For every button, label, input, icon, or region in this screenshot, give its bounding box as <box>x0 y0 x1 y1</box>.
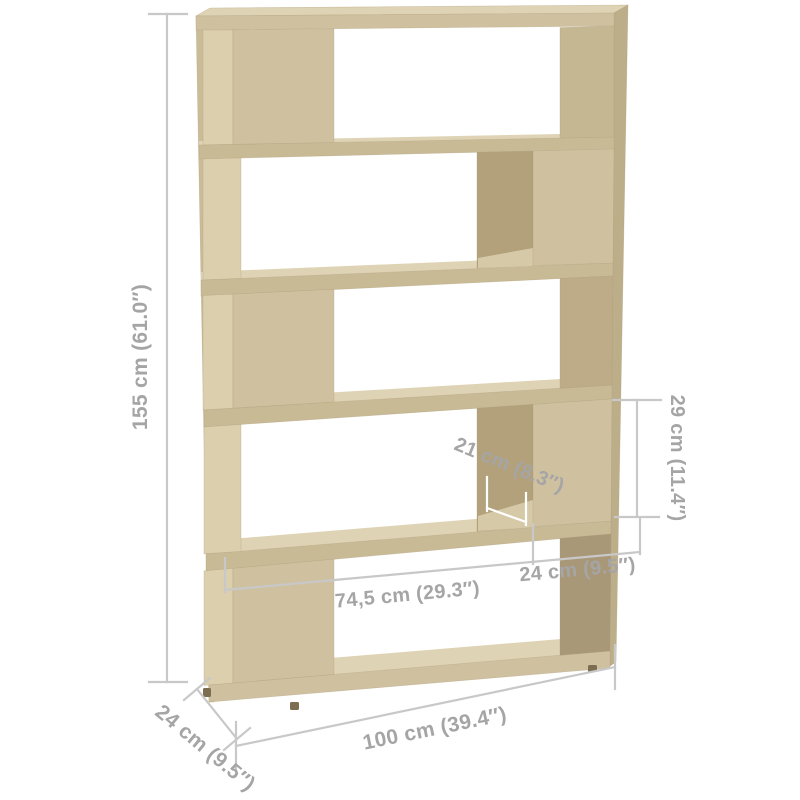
product-dimension-diagram: 155 cm (61.0″) 100 cm (39.4″) 24 cm (9.5… <box>0 0 800 800</box>
dimension-height: 155 cm (61.0″) <box>129 14 187 682</box>
tier5-right-inner-panel <box>560 534 611 655</box>
tier1-right-inner-panel <box>560 26 614 138</box>
tier2-left-inner-panel <box>203 158 241 280</box>
foot-left <box>203 688 211 697</box>
tier4-left-inner-panel <box>204 424 241 553</box>
tier5-box-front <box>233 559 334 683</box>
tier1-box-left-side <box>203 30 233 145</box>
tier5-box-left-side <box>204 568 233 685</box>
tier3-right-inner-panel <box>560 276 613 388</box>
inner-width-dimension-label: 74,5 cm (29.3″) <box>334 577 481 612</box>
bookshelf-diagram-canvas: 155 cm (61.0″) 100 cm (39.4″) 24 cm (9.5… <box>0 0 800 800</box>
width-dimension-label: 100 cm (39.4″) <box>361 703 509 755</box>
tier3-box-front <box>233 289 334 408</box>
tier1-box-front <box>233 29 334 144</box>
height-dimension-label: 155 cm (61.0″) <box>129 284 152 430</box>
tier2-box-front <box>533 149 614 266</box>
dimension-inner-height: 29 cm (11.4″) <box>613 395 688 522</box>
top-board-edge <box>196 13 614 30</box>
inner-height-dimension-label: 29 cm (11.4″) <box>666 395 688 522</box>
depth-dimension-label: 24 cm (9.5″) <box>151 700 260 795</box>
tier4-box-front <box>533 399 612 527</box>
foot-center-left <box>290 702 299 710</box>
tier3-box-left-side <box>203 294 233 410</box>
